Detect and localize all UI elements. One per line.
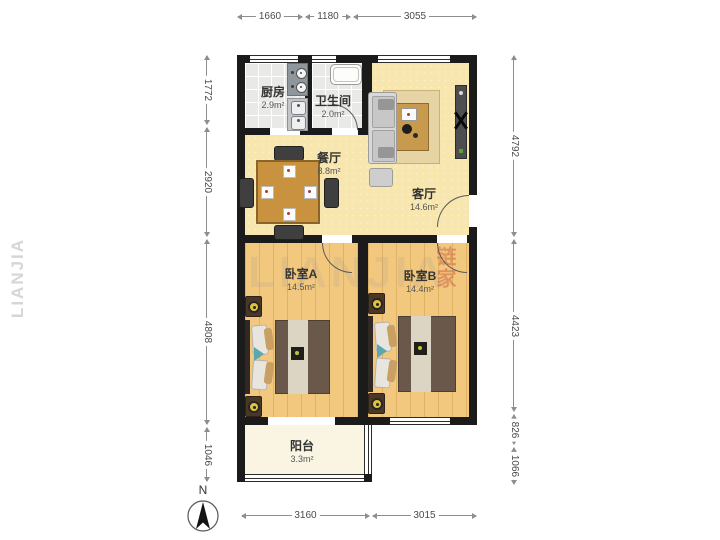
wall [352, 235, 437, 243]
floorplan-canvas: LIANJIA 链家 LIANJIA [0, 0, 720, 540]
bed-b-icon [368, 316, 456, 392]
window [245, 474, 364, 482]
bed-a-icon [245, 320, 330, 394]
dining-chair-right [324, 178, 339, 208]
dim-right-2: 4423 [509, 239, 518, 412]
nightstand-lamp-icon [245, 396, 262, 417]
dim-right-3: 826 [509, 414, 518, 445]
wall [469, 227, 477, 417]
kitchen-sink-icon [287, 98, 308, 131]
wall [336, 55, 378, 63]
door-arc [437, 243, 467, 273]
dim-top-1: 1660 [237, 12, 303, 21]
wall [335, 417, 372, 425]
window [390, 417, 450, 425]
wall [469, 63, 477, 195]
wall [237, 128, 270, 135]
dim-left-3: 4808 [202, 239, 211, 425]
dim-left-1: 1772 [202, 55, 211, 125]
dim-bottom-1: 3160 [241, 511, 370, 520]
wall [364, 474, 372, 482]
dining-chair-bottom [274, 225, 304, 240]
wall [237, 55, 250, 63]
compass-n-label: N [181, 484, 225, 496]
dim-right-1: 4792 [509, 55, 518, 237]
north-compass: N [181, 484, 225, 538]
dim-top-3: 3055 [353, 12, 477, 21]
sofa-icon [368, 92, 397, 164]
nightstand-lamp-icon [368, 393, 385, 414]
dim-top-2: 1180 [305, 12, 351, 21]
nightstand-lamp-icon [245, 296, 262, 317]
window [312, 55, 336, 63]
dining-chair-left [239, 178, 254, 208]
coffee-table-icon [393, 103, 429, 151]
window [364, 425, 372, 474]
wall [237, 417, 268, 425]
dim-bottom-2: 3015 [372, 511, 477, 520]
wall [467, 235, 477, 243]
window [378, 55, 450, 63]
wall [237, 425, 245, 482]
tv-cabinet-icon [455, 85, 467, 159]
wall [298, 55, 312, 63]
dim-left-2: 2920 [202, 127, 211, 237]
bathtub-icon [330, 64, 362, 85]
compass-icon [181, 496, 225, 536]
dim-left-4: 1046 [202, 427, 211, 482]
wall [312, 128, 332, 135]
window [250, 55, 298, 63]
door-arc [437, 195, 469, 227]
nightstand-lamp-icon [368, 293, 385, 314]
wall [358, 243, 368, 417]
wall [372, 417, 390, 425]
wall [450, 55, 477, 63]
dining-chair-top [274, 146, 304, 161]
stove-icon [287, 63, 308, 96]
door-arc [322, 243, 352, 273]
dim-right-4: 1066 [509, 447, 518, 485]
armchair-icon [369, 168, 393, 187]
door-arc [332, 104, 358, 130]
dining-table-icon [256, 160, 320, 224]
wall [450, 417, 477, 425]
